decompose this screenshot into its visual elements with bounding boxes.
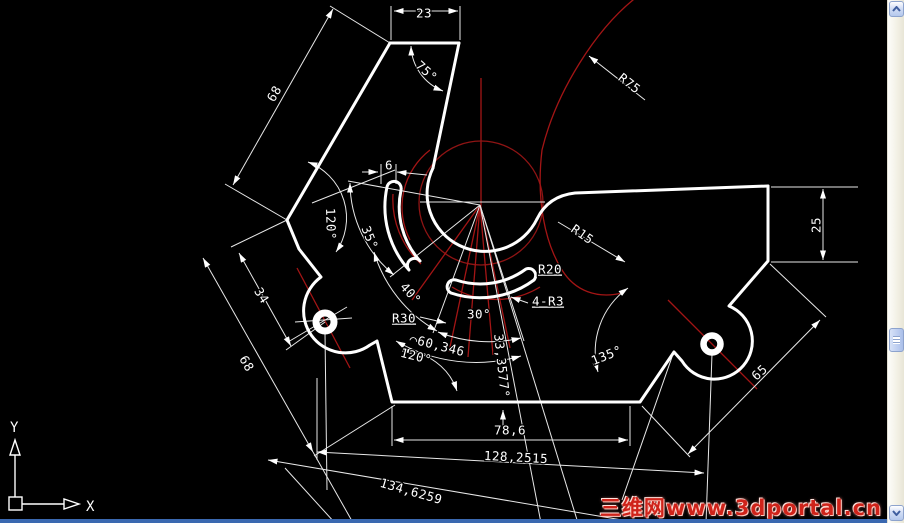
cad-viewport: Y X 2375°68R756120°35°40°R3030°R204-R3R1… bbox=[0, 0, 904, 523]
neck-edge bbox=[433, 43, 459, 168]
construction-line bbox=[468, 205, 480, 357]
r75-arc bbox=[540, 0, 638, 295]
dimension-line bbox=[642, 406, 690, 457]
dimension-line bbox=[225, 184, 287, 220]
dimension-line bbox=[312, 170, 395, 203]
dimension-label: 23 bbox=[416, 6, 432, 21]
ucs-y-arrow-icon bbox=[10, 440, 20, 455]
thumb-grip-icon bbox=[893, 336, 900, 344]
dimension-label: 35° bbox=[358, 224, 381, 252]
dimension-label: 30° bbox=[467, 307, 491, 322]
dimension-label: 68 bbox=[236, 353, 257, 374]
dimension-labels-layer: 2375°68R756120°35°40°R3030°R204-R3R15⌒60… bbox=[236, 6, 823, 508]
dimension-line bbox=[231, 220, 287, 247]
drawing-canvas[interactable]: Y X 2375°68R756120°35°40°R3030°R204-R3R1… bbox=[0, 0, 904, 523]
dimension-label: R15 bbox=[568, 221, 596, 247]
scroll-up-button[interactable] bbox=[889, 1, 904, 17]
dimension-label: R20 bbox=[538, 262, 562, 277]
dimension-line bbox=[348, 181, 480, 205]
scroll-down-button[interactable] bbox=[889, 505, 904, 521]
horizontal-scrollbar-edge[interactable] bbox=[0, 519, 887, 523]
ucs-icon: Y X bbox=[9, 420, 95, 515]
part-outline-layer bbox=[287, 43, 768, 402]
dimension-line bbox=[330, 6, 390, 43]
dimension-label: 25 bbox=[809, 217, 824, 233]
construction-lines-layer bbox=[297, 0, 757, 389]
dimension-label: 40° bbox=[397, 279, 424, 307]
dimension-line bbox=[268, 460, 640, 523]
dimension-label: 65 bbox=[748, 361, 770, 383]
dimension-label: 4-R3 bbox=[532, 294, 564, 309]
ucs-x-arrow-icon bbox=[64, 499, 79, 509]
chevron-up-icon bbox=[892, 6, 901, 12]
left-arm-edge bbox=[287, 43, 390, 220]
dimension-line bbox=[285, 468, 335, 523]
vertical-scrollbar[interactable] bbox=[887, 0, 904, 523]
right-hole-centerline bbox=[668, 300, 757, 389]
dimension-line bbox=[325, 333, 327, 490]
ucs-y-label: Y bbox=[10, 420, 19, 436]
dimension-line bbox=[397, 172, 427, 175]
dimension-label: 75° bbox=[413, 58, 441, 85]
ucs-x-label: X bbox=[86, 499, 95, 515]
dimension-label: 6 bbox=[385, 158, 393, 173]
dimension-layer bbox=[203, 6, 858, 523]
dimension-label: 68 bbox=[264, 83, 285, 104]
dimension-label: R75 bbox=[616, 70, 644, 97]
watermark-text: 三维网www.3dportal.cn bbox=[600, 492, 882, 522]
dimension-line bbox=[511, 297, 528, 303]
dimension-label: 34 bbox=[251, 285, 272, 307]
dimension-label: 134,6259 bbox=[378, 475, 444, 507]
dimension-label: 128,2515 bbox=[484, 448, 549, 466]
chevron-down-icon bbox=[892, 510, 901, 516]
scrollbar-thumb[interactable] bbox=[889, 328, 904, 352]
tangent-edge bbox=[537, 186, 768, 219]
dimension-line bbox=[770, 264, 826, 317]
dimension-label: 120° bbox=[323, 208, 339, 241]
dimension-label: 135° bbox=[589, 342, 624, 368]
dimension-line bbox=[233, 9, 333, 185]
dimension-label: 78,6 bbox=[494, 423, 526, 438]
dimension-label: R30 bbox=[392, 311, 416, 326]
ucs-origin-square bbox=[9, 497, 22, 510]
dimension-line bbox=[313, 452, 352, 521]
bottom-slot bbox=[447, 268, 535, 297]
